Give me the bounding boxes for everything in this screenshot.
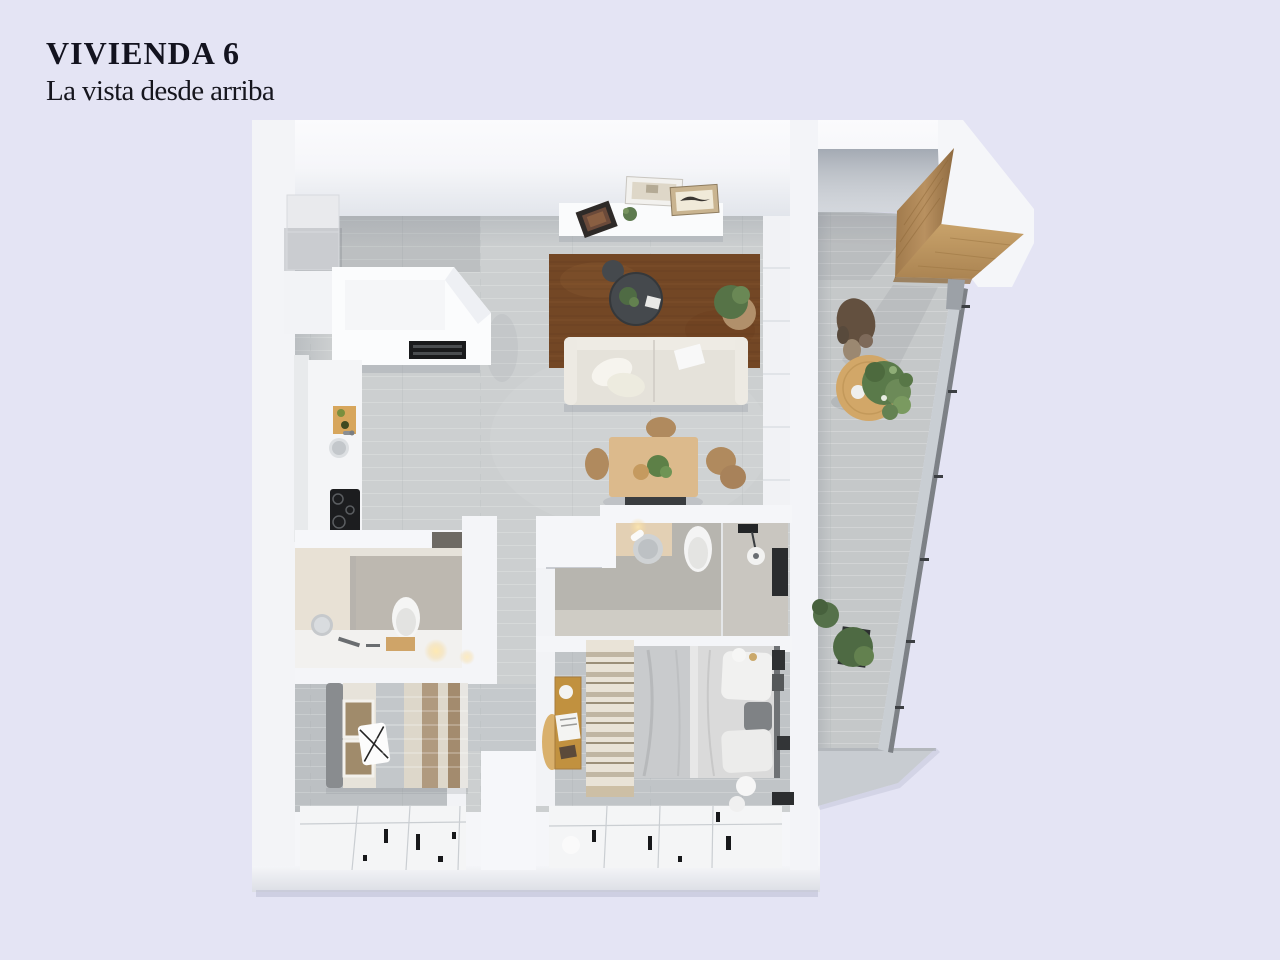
svg-text:La vista desde arriba: La vista desde arriba bbox=[46, 75, 275, 107]
svg-text:VIVIENDA 6: VIVIENDA 6 bbox=[46, 35, 240, 71]
